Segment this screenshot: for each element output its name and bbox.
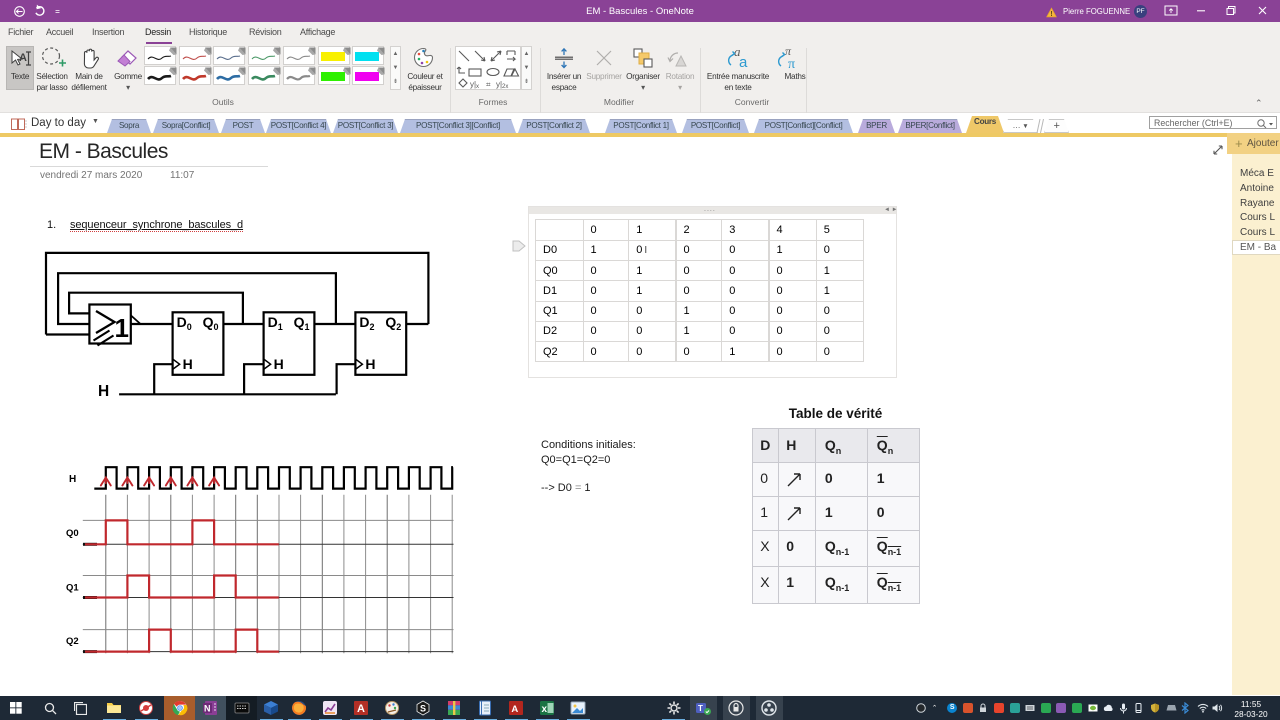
svg-text:H: H	[365, 356, 375, 372]
svg-text:H: H	[69, 474, 76, 485]
svg-text:⌗: ⌗	[486, 80, 491, 89]
svg-text:T: T	[698, 704, 703, 713]
svg-text:x: x	[542, 704, 548, 715]
svg-text:A: A	[357, 703, 365, 715]
svg-text:1: 1	[115, 313, 129, 343]
svg-text:π: π	[788, 57, 795, 71]
svg-text:A: A	[511, 704, 518, 715]
svg-text:S: S	[420, 704, 426, 714]
svg-text:!: !	[1050, 11, 1052, 18]
svg-text:H: H	[98, 383, 109, 400]
svg-text:Q0: Q0	[66, 528, 79, 539]
svg-text:H: H	[274, 356, 284, 372]
svg-text:Q1: Q1	[66, 583, 79, 594]
svg-text:Q2: Q2	[66, 636, 79, 647]
svg-text:2x: 2x	[502, 84, 508, 89]
svg-text:A: A	[19, 52, 27, 64]
svg-text:x: x	[476, 84, 479, 89]
svg-text:a: a	[739, 54, 748, 71]
svg-text:N: N	[204, 704, 211, 714]
svg-text:H: H	[183, 356, 193, 372]
